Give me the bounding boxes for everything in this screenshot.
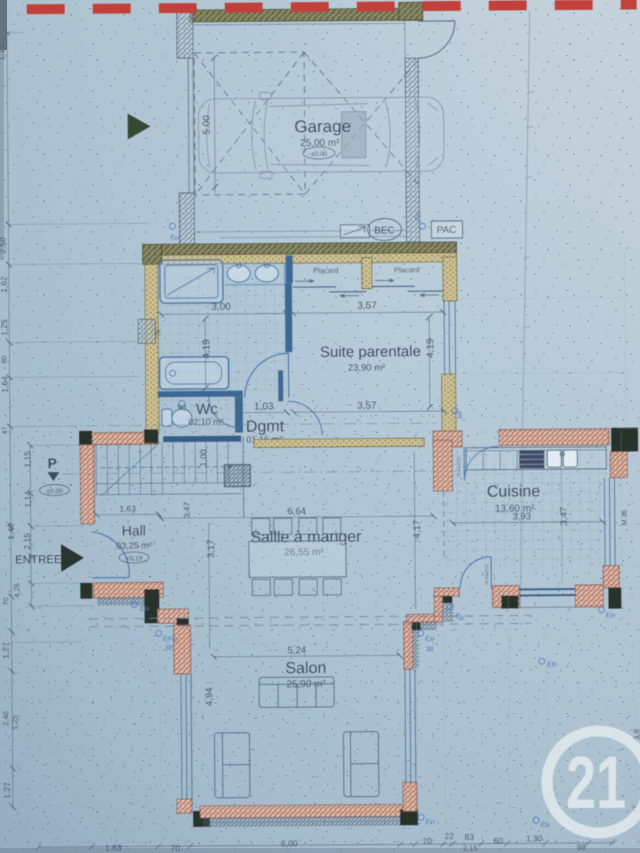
svg-text:21: 21 — [566, 741, 626, 824]
